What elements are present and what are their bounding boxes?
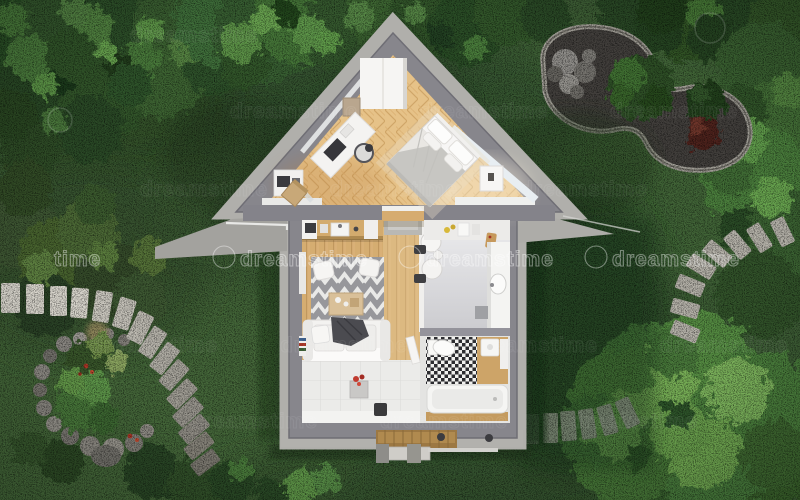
svg-text:dreamstime: dreamstime bbox=[612, 248, 740, 271]
svg-text:dreamstime: dreamstime bbox=[420, 100, 548, 123]
svg-text:dreamstime: dreamstime bbox=[426, 248, 554, 271]
svg-text:dreamstime: dreamstime bbox=[130, 24, 258, 47]
svg-text:dreamstime: dreamstime bbox=[90, 334, 218, 357]
svg-text:dreamstime: dreamstime bbox=[520, 178, 648, 201]
svg-text:dreamstime: dreamstime bbox=[330, 178, 458, 201]
svg-text:dreamstime: dreamstime bbox=[140, 178, 268, 201]
svg-text:dreamstime: dreamstime bbox=[380, 410, 508, 433]
svg-text:dreamstime: dreamstime bbox=[230, 100, 358, 123]
svg-text:time: time bbox=[54, 248, 101, 271]
svg-text:dreamstime: dreamstime bbox=[190, 410, 318, 433]
svg-text:dreamstime: dreamstime bbox=[570, 410, 698, 433]
svg-text:dreamstime: dreamstime bbox=[610, 100, 738, 123]
svg-text:dreamstime: dreamstime bbox=[240, 248, 368, 271]
svg-text:dreamstime: dreamstime bbox=[280, 334, 408, 357]
svg-text:dreamstime: dreamstime bbox=[470, 334, 598, 357]
svg-text:dreamstime: dreamstime bbox=[660, 334, 788, 357]
